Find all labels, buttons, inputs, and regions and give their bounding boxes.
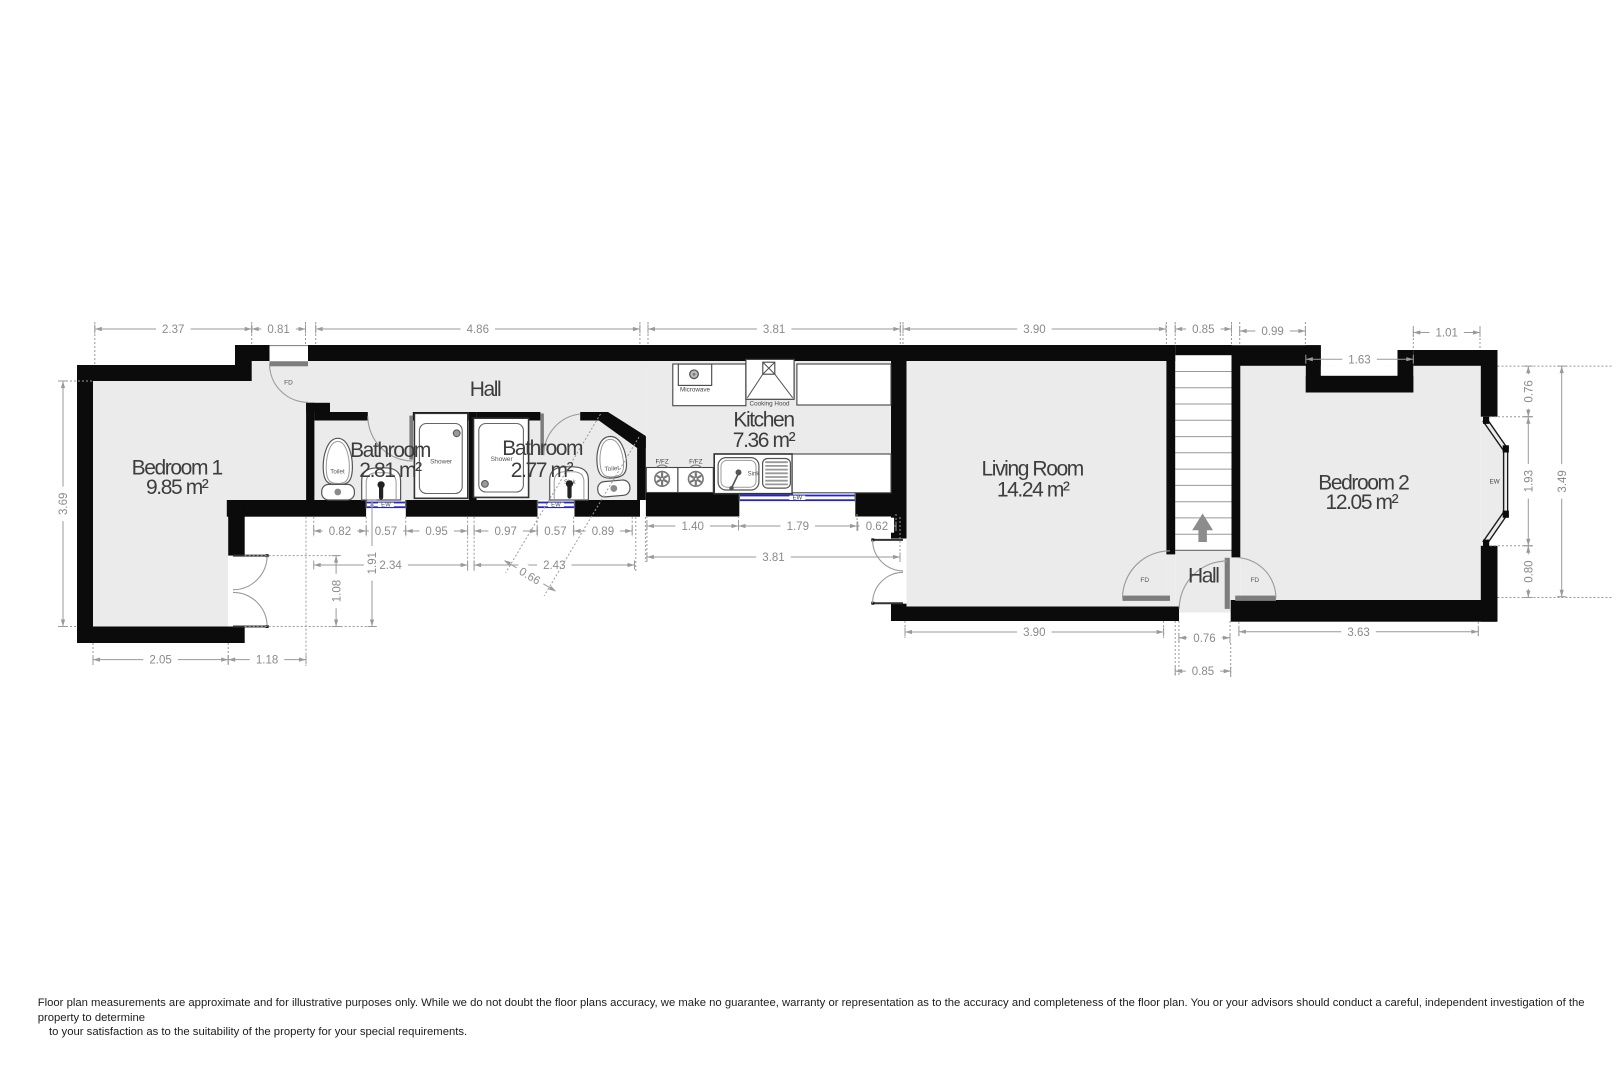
svg-text:Living Room: Living Room	[982, 457, 1084, 480]
svg-text:Shower: Shower	[430, 458, 453, 465]
svg-text:2.43: 2.43	[543, 560, 565, 572]
svg-text:EW: EW	[551, 502, 561, 508]
svg-text:0.82: 0.82	[329, 526, 351, 538]
svg-text:3.81: 3.81	[762, 552, 784, 564]
svg-text:Hall: Hall	[470, 378, 501, 401]
svg-text:0.97: 0.97	[495, 526, 517, 538]
svg-text:0.57: 0.57	[544, 526, 566, 538]
svg-text:2.81 m²: 2.81 m²	[359, 459, 422, 482]
svg-text:2.05: 2.05	[149, 655, 171, 667]
svg-text:1.18: 1.18	[256, 655, 278, 667]
svg-text:EW: EW	[792, 495, 802, 501]
svg-text:0.80: 0.80	[1524, 560, 1536, 582]
svg-text:3.63: 3.63	[1347, 627, 1369, 639]
svg-text:1.63: 1.63	[1348, 354, 1370, 366]
svg-text:to your satisfaction as to the: to your satisfaction as to the suitabili…	[49, 1026, 467, 1038]
svg-text:Bathroom: Bathroom	[502, 437, 583, 460]
svg-text:0.81: 0.81	[267, 324, 289, 336]
svg-text:FD: FD	[1140, 577, 1149, 584]
svg-text:F/FZ: F/FZ	[655, 459, 668, 466]
svg-text:Microwave: Microwave	[680, 387, 711, 394]
svg-text:0.57: 0.57	[375, 526, 397, 538]
svg-text:0.89: 0.89	[592, 526, 614, 538]
svg-text:2.34: 2.34	[379, 560, 402, 572]
svg-text:12.05 m²: 12.05 m²	[1326, 491, 1399, 514]
svg-text:2.37: 2.37	[162, 324, 184, 336]
svg-text:1.91: 1.91	[367, 552, 379, 574]
svg-text:Kitchen: Kitchen	[733, 408, 794, 431]
svg-text:3.69: 3.69	[58, 493, 70, 515]
svg-text:0.62: 0.62	[866, 521, 888, 533]
svg-text:Cooking Hood: Cooking Hood	[750, 401, 790, 408]
svg-text:Toilet: Toilet	[330, 468, 345, 475]
svg-text:property to determine: property to determine	[38, 1012, 145, 1024]
svg-text:EW: EW	[381, 502, 391, 508]
svg-text:0.95: 0.95	[425, 526, 447, 538]
svg-text:0.85: 0.85	[1192, 324, 1214, 336]
svg-text:Toilet: Toilet	[604, 465, 619, 473]
svg-text:1.08: 1.08	[331, 580, 343, 602]
svg-text:0.76: 0.76	[1193, 633, 1215, 645]
svg-text:1.79: 1.79	[787, 521, 809, 533]
svg-text:EW: EW	[1490, 478, 1500, 485]
svg-text:FD: FD	[284, 380, 293, 387]
svg-text:3.90: 3.90	[1023, 627, 1045, 639]
svg-text:1.40: 1.40	[682, 521, 704, 533]
svg-text:2.77 m²: 2.77 m²	[511, 459, 574, 482]
svg-text:7.36 m²: 7.36 m²	[733, 429, 796, 452]
svg-text:F/FZ: F/FZ	[689, 459, 702, 466]
svg-text:FD: FD	[1250, 577, 1259, 584]
svg-text:Sink: Sink	[748, 472, 761, 478]
svg-text:3.49: 3.49	[1557, 470, 1569, 492]
svg-text:Hall: Hall	[1188, 565, 1219, 588]
svg-text:0.99: 0.99	[1261, 326, 1283, 338]
svg-text:0.85: 0.85	[1192, 666, 1214, 678]
svg-text:1.93: 1.93	[1524, 470, 1536, 492]
svg-text:14.24 m²: 14.24 m²	[997, 478, 1070, 501]
svg-text:0.76: 0.76	[1523, 380, 1535, 402]
svg-text:3.81: 3.81	[763, 324, 785, 336]
svg-text:9.85 m²: 9.85 m²	[146, 476, 209, 499]
svg-text:Floor plan measurements are ap: Floor plan measurements are approximate …	[38, 997, 1585, 1009]
svg-text:3.90: 3.90	[1023, 324, 1045, 336]
svg-text:4.86: 4.86	[467, 324, 489, 336]
svg-text:1.01: 1.01	[1436, 328, 1458, 340]
